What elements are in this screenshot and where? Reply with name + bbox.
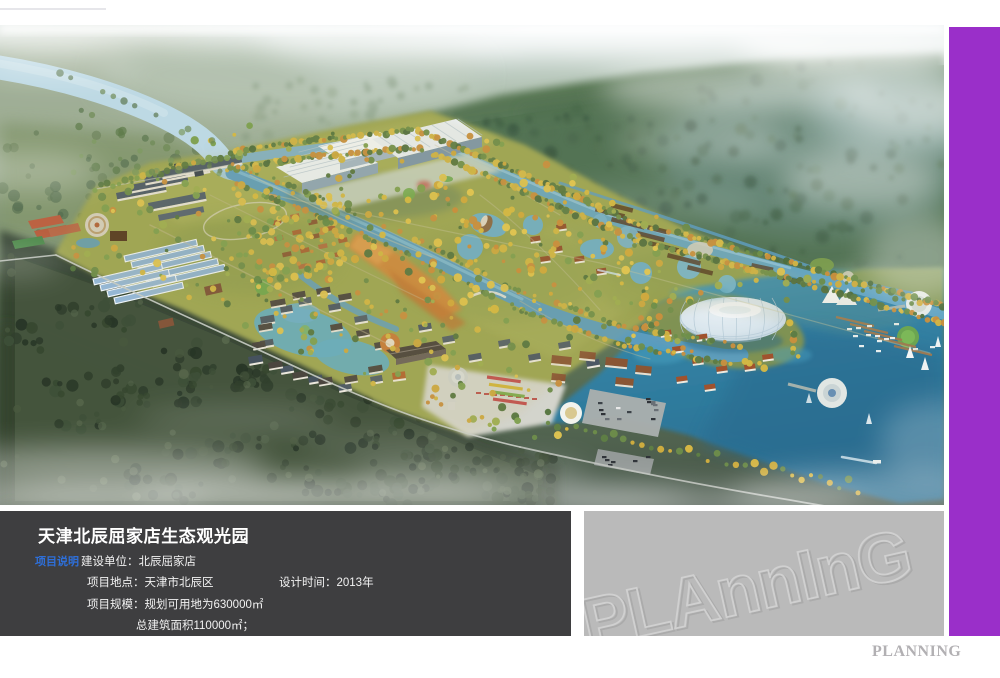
svg-text:PLAnnInG: PLAnnInG (584, 514, 918, 636)
